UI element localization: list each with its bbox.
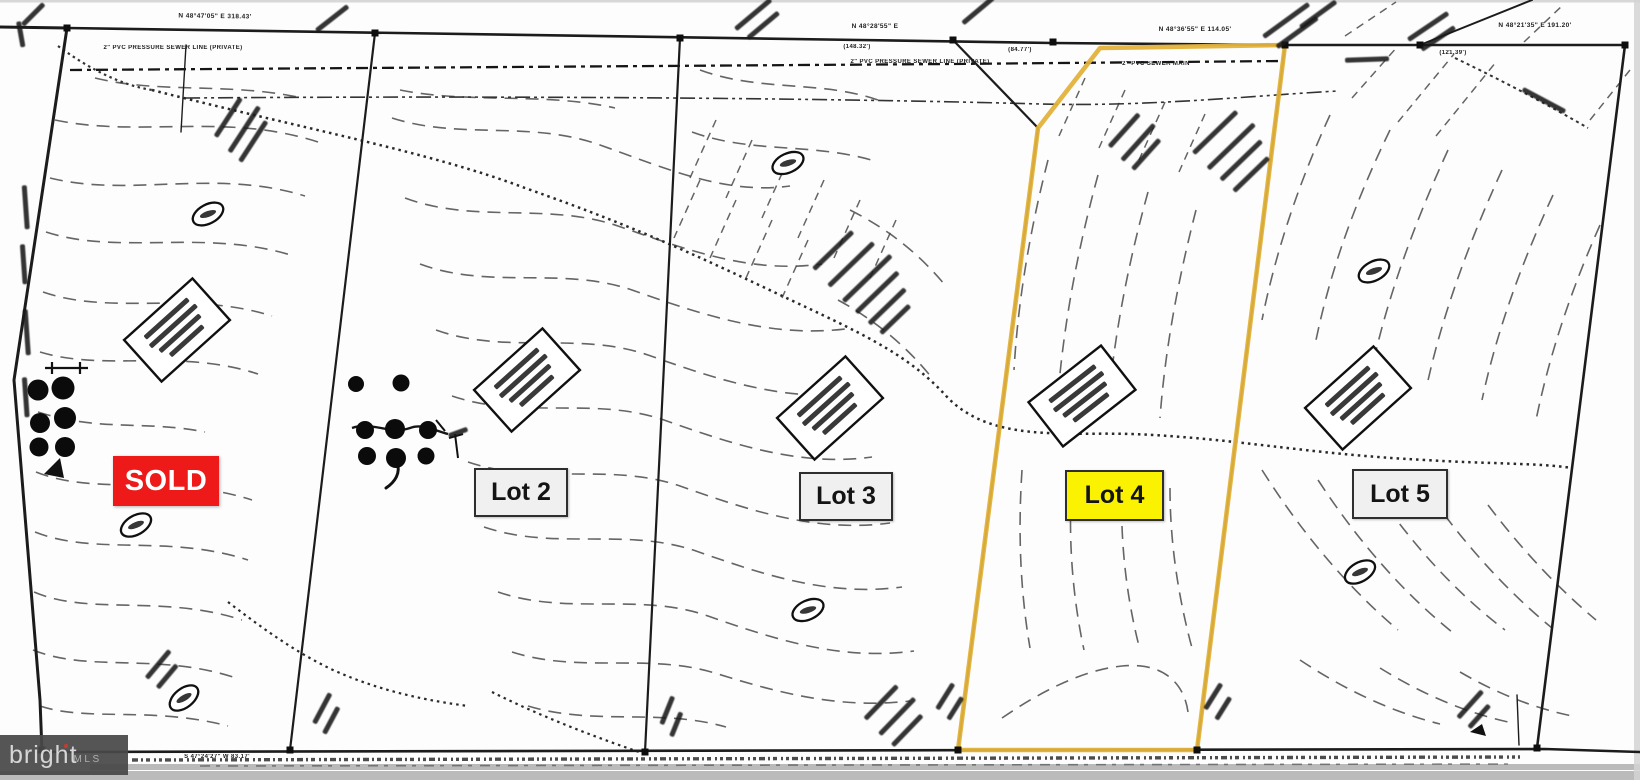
corner-node-marker	[1534, 745, 1541, 752]
contour-line	[34, 592, 242, 620]
tree-symbol	[30, 438, 49, 457]
elevation-oval-marker	[1355, 255, 1393, 287]
brightmls-watermark: bright MLS	[0, 735, 128, 775]
contour-line	[50, 178, 305, 196]
contour-dash	[674, 180, 700, 238]
tree-symbol	[418, 448, 435, 465]
lot2-label: Lot 2	[474, 468, 568, 517]
contour-line	[1488, 505, 1596, 620]
contour-dash	[798, 180, 824, 238]
east-boundary	[1537, 45, 1625, 748]
lot-line-c	[953, 40, 1038, 750]
tree-symbol	[52, 377, 75, 400]
corner-node-marker	[677, 35, 684, 42]
tree-symbol	[30, 413, 50, 433]
tree-symbol	[356, 421, 374, 439]
dimension-annotation: (84.77')	[990, 47, 1050, 53]
sewer-line-label: 2" PVC PRESSURE SEWER LINE (PRIVATE)	[800, 59, 1040, 65]
lot-info-box	[1305, 346, 1411, 449]
plat-map-canvas: SOLD Lot 2 Lot 3 Lot 4 Lot 5 N 48°47'05"…	[0, 0, 1640, 780]
contour-dash	[782, 240, 808, 298]
contour-line	[1427, 170, 1502, 385]
corner-node-marker	[1194, 747, 1201, 754]
note-leader	[181, 45, 186, 132]
contour-dash	[746, 220, 772, 278]
corner-node-marker	[287, 747, 294, 754]
lot-line-b	[645, 38, 680, 752]
contour-line	[512, 652, 910, 703]
contour-line	[1020, 470, 1030, 648]
dimension-annotation: (148.32')	[822, 44, 892, 50]
contour-dash	[834, 200, 860, 258]
contour-line	[700, 70, 878, 100]
contour-dash	[1398, 54, 1454, 122]
contour-line	[1160, 210, 1196, 418]
lot-info-box	[474, 328, 580, 431]
tree-symbol	[386, 448, 406, 468]
contour-line	[1002, 665, 1188, 718]
lot-info-box-frame	[1305, 346, 1411, 449]
contour-line	[1380, 668, 1508, 722]
road-edge	[38, 749, 1640, 752]
contour-dash	[710, 200, 736, 258]
contour-dash	[1345, 2, 1396, 36]
corner-node-marker	[372, 30, 379, 37]
north-boundary	[67, 28, 1625, 45]
tree-symbol	[358, 447, 376, 465]
contour-line	[1482, 195, 1553, 400]
elevation-oval-marker	[189, 198, 227, 230]
survey-drawing	[0, 0, 1640, 780]
contour-dash	[1139, 102, 1165, 160]
bearing-annotation: N 48°36'55" E 114.05'	[1120, 26, 1270, 33]
elevation-oval-marker	[789, 594, 827, 625]
road-annotation-row	[132, 757, 1520, 760]
dotted-path-sw	[228, 602, 468, 706]
contour-line	[498, 592, 914, 653]
dotted-path-s	[492, 692, 642, 753]
corner-node-marker	[1050, 39, 1057, 46]
corner-node-marker	[64, 25, 71, 32]
bearing-annotation: N 48°28'55" E	[820, 23, 930, 30]
contour-line	[1315, 130, 1390, 345]
sewer-main-label: 2" PVC SEWER MAIN	[1096, 61, 1216, 67]
contour-line	[400, 90, 615, 108]
contour-line	[33, 650, 236, 678]
elevation-oval-marker	[769, 147, 807, 178]
sold-badge: SOLD	[113, 456, 219, 506]
tree-symbol	[28, 380, 49, 401]
tick-mark	[436, 420, 445, 431]
sewer-line-label: 2" PVC PRESSURE SEWER LINE (PRIVATE)	[58, 45, 288, 51]
lot-line-a	[290, 33, 375, 750]
contour-line	[55, 120, 318, 142]
map-symbols	[44, 362, 1486, 736]
tree-symbol	[54, 407, 76, 429]
lot-info-box	[124, 278, 230, 381]
contour-line	[1170, 488, 1192, 648]
contour-dash	[1352, 46, 1398, 98]
lot-info-box-frame	[1029, 346, 1136, 447]
contour-dash	[726, 140, 752, 198]
contour-line	[528, 706, 726, 727]
contour-line	[484, 527, 902, 589]
tree-symbol	[393, 375, 410, 392]
corner-node-marker	[950, 37, 957, 44]
corner-node-marker	[1622, 42, 1629, 49]
tree-symbol	[419, 421, 437, 439]
watermark-suffix: MLS	[74, 754, 102, 765]
contour-line	[392, 118, 790, 188]
lot4-label-highlighted: Lot 4	[1065, 470, 1164, 521]
sewer-diagonal	[1455, 58, 1588, 128]
corner-node-marker	[955, 747, 962, 754]
survey-triangle-marker	[44, 458, 64, 478]
road-tick	[1517, 695, 1519, 745]
contour-line	[46, 232, 294, 256]
bearing-annotation: N 48°21'35" E 191.20'	[1455, 22, 1615, 29]
contour-dash	[1590, 70, 1630, 120]
lot-info-box-frame	[474, 328, 580, 431]
tree-symbol	[385, 419, 405, 439]
contour-line	[40, 706, 228, 726]
tree-symbol	[348, 376, 364, 392]
bearing-annotation: S 47°24'27" W 83.17'	[132, 754, 302, 760]
contour-line	[1432, 498, 1552, 628]
lot-info-box	[777, 356, 883, 459]
lot-info-box	[1029, 346, 1136, 447]
lot5-label: Lot 5	[1352, 469, 1448, 519]
contour-line	[1300, 660, 1440, 724]
contour-line	[420, 264, 845, 331]
corner-node-marker	[642, 749, 649, 756]
lot-info-box-frame	[777, 356, 883, 459]
elevation-oval-marker	[1341, 556, 1379, 589]
contour-dash	[690, 120, 716, 178]
corner-dotted-path	[58, 46, 152, 90]
elevation-oval-marker	[165, 680, 203, 715]
dimension-annotation: (121.39')	[1418, 50, 1488, 56]
fence-symbol	[45, 362, 88, 374]
contour-line	[95, 78, 302, 98]
fence-symbol	[449, 434, 463, 458]
lot-info-box-frame	[124, 278, 230, 381]
tree-symbol	[55, 437, 75, 457]
contour-line	[405, 198, 822, 266]
elevation-oval-marker	[117, 509, 155, 542]
contour-line	[35, 532, 248, 560]
lot3-label: Lot 3	[799, 472, 893, 521]
watermark-dot-icon	[64, 744, 68, 748]
